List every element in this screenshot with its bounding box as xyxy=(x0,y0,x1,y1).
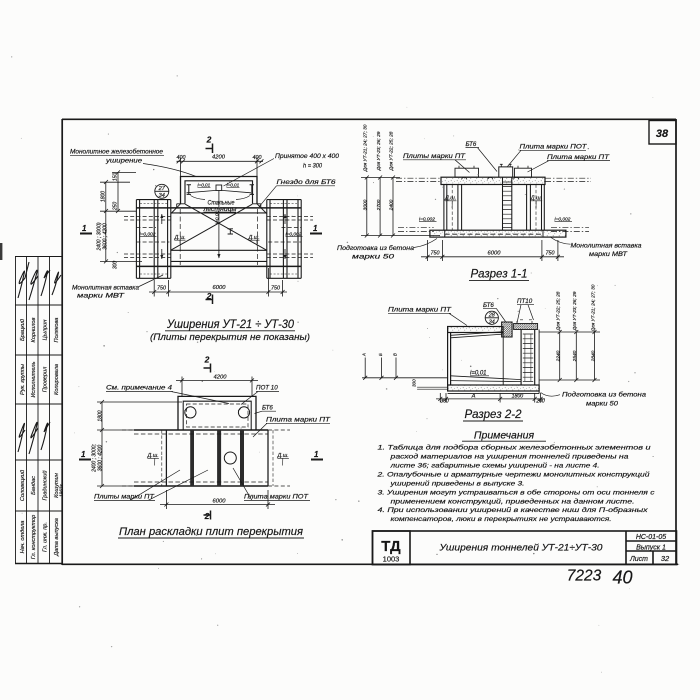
svg-text:Лист: Лист xyxy=(629,556,648,563)
svg-text:2. Опалубочные и арматурные: 2. Опалубочные и арматурные чертежи моно… xyxy=(376,471,650,479)
svg-text:применением конструкций, прив: применением конструкций, приведенных на … xyxy=(391,498,635,506)
svg-text:В: В xyxy=(392,353,397,356)
svg-text:Гл. конструктор: Гл. конструктор xyxy=(31,515,37,560)
svg-text:6000: 6000 xyxy=(213,499,227,505)
svg-text:32: 32 xyxy=(661,554,670,563)
svg-text:См. примечание 4: См. примечание 4 xyxy=(106,385,173,392)
svg-text:БТ6: БТ6 xyxy=(262,405,273,412)
svg-text:Гнездо для БТ6: Гнездо для БТ6 xyxy=(277,179,337,186)
svg-text:Плита марки ПТ: Плита марки ПТ xyxy=(547,154,611,161)
svg-text:300: 300 xyxy=(113,261,119,270)
svg-text:Корнилов: Корнилов xyxy=(31,317,37,342)
svg-text:38: 38 xyxy=(656,128,669,140)
svg-text:Б: Б xyxy=(378,353,383,356)
svg-text:Полякова: Полякова xyxy=(54,318,60,343)
svg-text:4200: 4200 xyxy=(214,375,228,381)
svg-text:марки 50: марки 50 xyxy=(586,400,619,407)
svg-text:2: 2 xyxy=(204,355,210,365)
svg-text:2700: 2700 xyxy=(376,199,382,211)
svg-text:3600 ; 4200: 3600 ; 4200 xyxy=(98,445,104,472)
svg-text:200: 200 xyxy=(535,399,545,405)
svg-text:Нач. отдела: Нач. отдела xyxy=(20,521,26,554)
svg-text:ТД: ТД xyxy=(381,538,401,555)
svg-text:Монолитная вставка: Монолитная вставка xyxy=(72,285,140,292)
svg-text:Принятое 400 х 400: Принятое 400 х 400 xyxy=(275,153,340,160)
svg-text:А: А xyxy=(362,353,367,357)
svg-text:750: 750 xyxy=(431,251,440,257)
svg-text:Градинский: Градинский xyxy=(42,471,49,501)
svg-text:400: 400 xyxy=(177,155,186,161)
svg-text:300: 300 xyxy=(440,399,449,405)
svg-text:уширений приведены в выпуск: уширений приведены в выпуске 3. xyxy=(389,480,524,488)
svg-text:Разрез 1-1: Разрез 1-1 xyxy=(471,269,528,281)
svg-text:2: 2 xyxy=(206,135,212,145)
svg-text:300: 300 xyxy=(412,379,417,387)
svg-text:(Плиты перекрытия не показа: (Плиты перекрытия не показаны) xyxy=(150,332,310,342)
svg-text:Уширения тоннелей УТ-21÷УТ-30: Уширения тоннелей УТ-21÷УТ-30 xyxy=(438,543,603,554)
svg-text:расход материалов на уширен: расход материалов на уширения тоннелей п… xyxy=(389,453,629,461)
svg-text:План раскладки плит перекры: План раскладки плит перекрытия xyxy=(119,526,303,538)
svg-text:h = 300: h = 300 xyxy=(303,163,322,170)
svg-text:150: 150 xyxy=(113,173,119,182)
svg-text:Плита марки ПОТ: Плита марки ПОТ xyxy=(244,494,309,501)
svg-text:Для УТ-21; 24; 27; 30: Для УТ-21; 24; 27; 30 xyxy=(363,124,369,172)
svg-text:27: 27 xyxy=(158,186,166,192)
svg-text:i=0,01: i=0,01 xyxy=(227,183,240,188)
svg-text:Для УТ-22; 25; 28: Для УТ-22; 25; 28 xyxy=(556,291,562,331)
svg-text:БТ6: БТ6 xyxy=(483,302,494,309)
svg-text:уширение: уширение xyxy=(105,158,143,165)
svg-text:Для УТ-22; 25; 28: Для УТ-22; 25; 28 xyxy=(389,131,395,171)
svg-text:1963г.: 1963г. xyxy=(59,483,64,497)
svg-text:ПТ10: ПТ10 xyxy=(517,298,533,305)
svg-text:400: 400 xyxy=(253,155,262,161)
svg-text:28: 28 xyxy=(488,313,495,319)
svg-text:Подготовка из бетона: Подготовка из бетона xyxy=(337,245,415,252)
svg-text:1003: 1003 xyxy=(383,555,400,564)
svg-text:250: 250 xyxy=(113,202,119,212)
svg-text:БТ6: БТ6 xyxy=(466,141,477,148)
svg-text:750: 750 xyxy=(546,251,555,257)
svg-text:Исполнитель: Исполнитель xyxy=(31,361,37,397)
svg-text:Монолитное железобетонное: Монолитное железобетонное xyxy=(70,149,164,156)
svg-text:Дата выпуска: Дата выпуска xyxy=(54,518,60,557)
svg-text:НС-01-05: НС-01-05 xyxy=(636,534,666,541)
svg-text:Подготовка из бетона: Подготовка из бетона xyxy=(562,392,647,399)
svg-text:Для УТ-23; 26; 29: Для УТ-23; 26; 29 xyxy=(376,131,382,171)
svg-text:Для УТ-23; 26; 29: Для УТ-23; 26; 29 xyxy=(572,291,578,331)
svg-text:1: 1 xyxy=(313,224,318,233)
svg-text:7223: 7223 xyxy=(567,568,602,585)
svg-text:Стальные: Стальные xyxy=(208,200,236,206)
svg-text:марки МВТ: марки МВТ xyxy=(589,251,628,258)
svg-text:34: 34 xyxy=(159,193,165,199)
svg-text:6000: 6000 xyxy=(488,250,502,256)
svg-text:2840: 2840 xyxy=(590,350,596,362)
svg-text:Гл. инж. пр.: Гл. инж. пр. xyxy=(43,522,49,552)
svg-text:Проверил: Проверил xyxy=(43,366,49,392)
svg-text:3600 ; 4200: 3600 ; 4200 xyxy=(103,223,109,250)
svg-text:марки МВТ: марки МВТ xyxy=(77,293,126,300)
svg-text:1: 1 xyxy=(82,224,87,233)
svg-text:А: А xyxy=(471,393,476,399)
svg-text:Рук. группы: Рук. группы xyxy=(20,364,26,395)
svg-text:3. Уширения могут устраивать: 3. Уширения могут устраиваться в обе сто… xyxy=(378,489,656,497)
svg-text:Плита марки ПТ: Плита марки ПТ xyxy=(388,307,453,314)
svg-text:750: 750 xyxy=(157,286,166,292)
svg-text:1: 1 xyxy=(314,450,319,459)
svg-text:1800: 1800 xyxy=(101,191,107,202)
svg-text:750: 750 xyxy=(271,286,280,292)
svg-text:компенсаторов, люки в перек: компенсаторов, люки в перекрытиях не уст… xyxy=(391,516,612,523)
svg-text:4200: 4200 xyxy=(212,155,226,161)
svg-text:3000: 3000 xyxy=(363,199,369,210)
svg-text:Бандас: Бандас xyxy=(31,476,37,495)
svg-text:Плиты марки ПТ: Плиты марки ПТ xyxy=(94,494,155,501)
svg-text:листе 36; габаритные схемы: листе 36; габаритные схемы уширений - на… xyxy=(389,462,599,470)
svg-text:1. Таблица для подбора сбор: 1. Таблица для подбора сборных железобет… xyxy=(378,443,652,451)
svg-text:Уширения УТ-21 ÷ УТ-30: Уширения УТ-21 ÷ УТ-30 xyxy=(166,319,295,331)
svg-text:Соловецкий: Соловецкий xyxy=(19,470,26,501)
svg-text:Цылрин: Цылрин xyxy=(43,320,49,341)
svg-text:i=0,01: i=0,01 xyxy=(215,210,221,224)
svg-text:34: 34 xyxy=(489,319,495,325)
svg-text:Разрез 2-2: Разрез 2-2 xyxy=(465,409,523,421)
svg-text:Копировала: Копировала xyxy=(54,364,60,395)
svg-text:2: 2 xyxy=(204,511,210,521)
svg-text:ПОТ 10: ПОТ 10 xyxy=(256,385,278,392)
svg-text:Плиты марки ПТ: Плиты марки ПТ xyxy=(403,153,467,160)
svg-text:Для УТ-21; 24; 27; 30: Для УТ-21; 24; 27; 30 xyxy=(590,284,596,332)
svg-text:1800: 1800 xyxy=(98,410,104,421)
svg-text:1800: 1800 xyxy=(512,393,524,399)
svg-text:40: 40 xyxy=(612,568,632,588)
svg-text:i=0,01: i=0,01 xyxy=(198,183,211,188)
svg-text:2540: 2540 xyxy=(572,350,578,362)
svg-text:Выпуск 1: Выпуск 1 xyxy=(636,545,666,552)
svg-text:2: 2 xyxy=(206,291,212,301)
svg-text:1: 1 xyxy=(81,450,86,459)
svg-text:Примечания: Примечания xyxy=(474,430,535,442)
svg-text:Монолитная вставка: Монолитная вставка xyxy=(571,242,643,249)
svg-text:2400: 2400 xyxy=(389,199,395,211)
svg-text:Плита марки ПТ: Плита марки ПТ xyxy=(266,417,332,424)
svg-text:6000: 6000 xyxy=(213,285,227,291)
svg-text:4. При использовании уширени: 4. При использовании уширений в качестве… xyxy=(378,506,649,514)
svg-text:Брацкий: Брацкий xyxy=(19,319,26,341)
svg-text:2240: 2240 xyxy=(556,350,562,362)
svg-text:Плита марки ПОТ: Плита марки ПОТ xyxy=(520,144,589,151)
svg-text:марки 50: марки 50 xyxy=(352,254,395,261)
